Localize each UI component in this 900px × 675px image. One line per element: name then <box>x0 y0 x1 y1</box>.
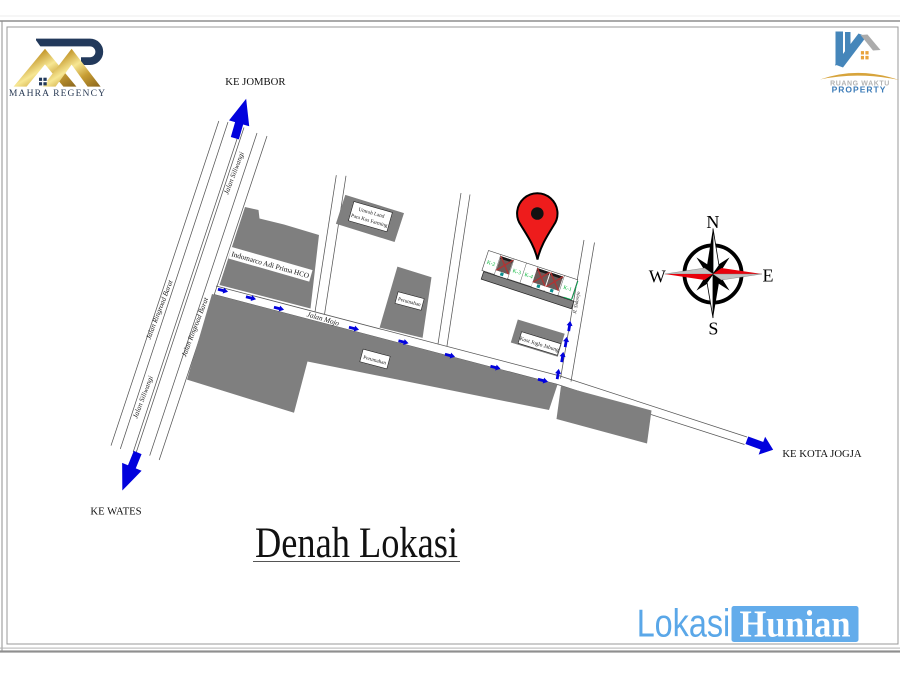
svg-text:Denah Lokasi: Denah Lokasi <box>255 520 458 567</box>
svg-text:W: W <box>649 266 666 286</box>
svg-text:KE JOMBOR: KE JOMBOR <box>225 76 286 88</box>
svg-text:N: N <box>706 212 719 232</box>
svg-text:Hunian: Hunian <box>740 604 851 646</box>
svg-text:KE KOTA JOGJA: KE KOTA JOGJA <box>782 448 862 460</box>
svg-text:PROPERTY: PROPERTY <box>832 85 887 95</box>
svg-text:Lokasi: Lokasi <box>637 603 731 646</box>
svg-text:KE WATES: KE WATES <box>90 506 141 518</box>
svg-text:MAHRA REGENCY: MAHRA REGENCY <box>9 88 106 99</box>
svg-text:S: S <box>708 319 718 339</box>
svg-text:E: E <box>763 265 774 285</box>
